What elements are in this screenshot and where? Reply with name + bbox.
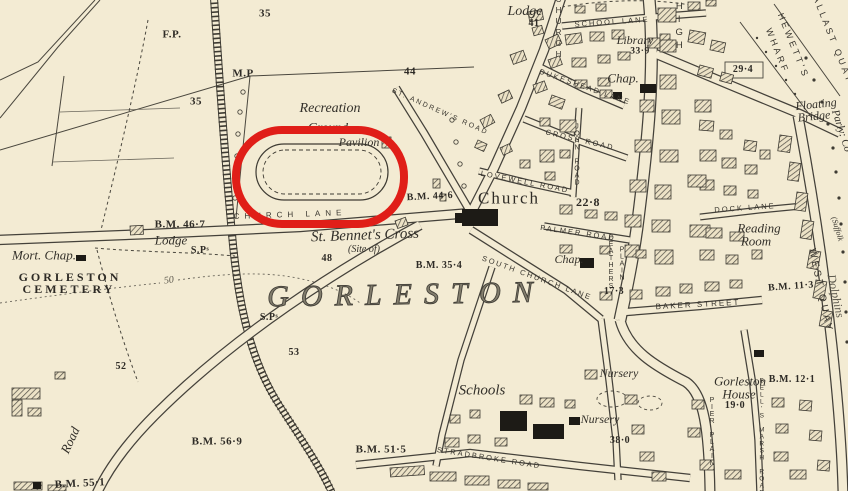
- map-canvas: F.P.3535M.P44Lodge41SCHOOL LANELibrary33…: [0, 0, 848, 491]
- annotation-layer: [0, 0, 848, 491]
- highlight-annotation: [236, 130, 404, 224]
